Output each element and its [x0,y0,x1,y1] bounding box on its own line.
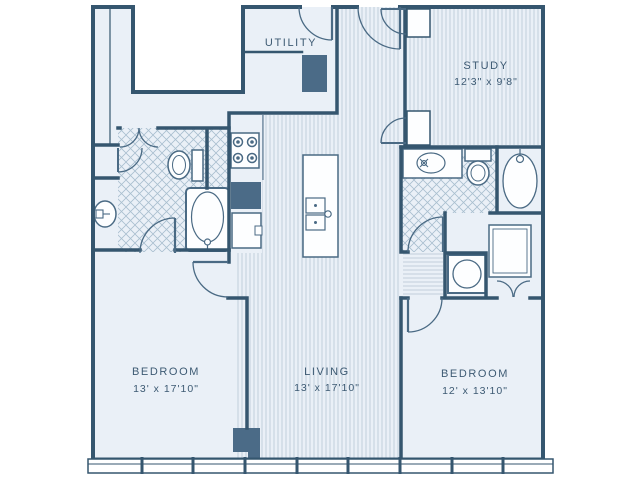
bedroom-right-label: BEDROOM [441,368,509,380]
bedroom-right-dims: 12' x 13'10" [442,385,508,397]
floorplan: UTILITY STUDY 12'3" x 9'8" BEDROOM 13' x… [0,0,640,480]
toilet-right-tank [465,149,491,161]
vanity-right-faucet-icon [420,159,428,167]
study-closet-bottom [407,111,430,145]
floorplan-svg: UTILITY STUDY 12'3" x 9'8" BEDROOM 13' x… [0,0,640,480]
bedroom-left-dims: 13' x 17'10" [133,383,199,395]
washer-dryer-drum-icon [453,260,481,288]
living-label: LIVING [304,366,350,378]
bathtub-left-basin [192,192,224,242]
window-band [88,457,553,474]
water-heater [302,55,327,92]
hall-nook-floor [403,252,443,297]
kitchen-sink-handle [255,226,262,235]
windows [88,459,553,473]
toilet-right-bowl-inner [471,165,485,181]
study-label: STUDY [463,60,508,72]
living-dims: 13' x 17'10" [294,382,360,394]
study-dims: 12'3" x 9'8" [454,76,518,88]
bedroom-left-label: BEDROOM [132,366,200,378]
toilet-left-tank [192,150,203,181]
toilet-left-bowl-inner [173,156,186,175]
utility-label: UTILITY [265,37,317,49]
refrigerator [231,182,261,209]
study-closet-top [407,9,430,37]
wardrobe-inner [493,229,527,273]
